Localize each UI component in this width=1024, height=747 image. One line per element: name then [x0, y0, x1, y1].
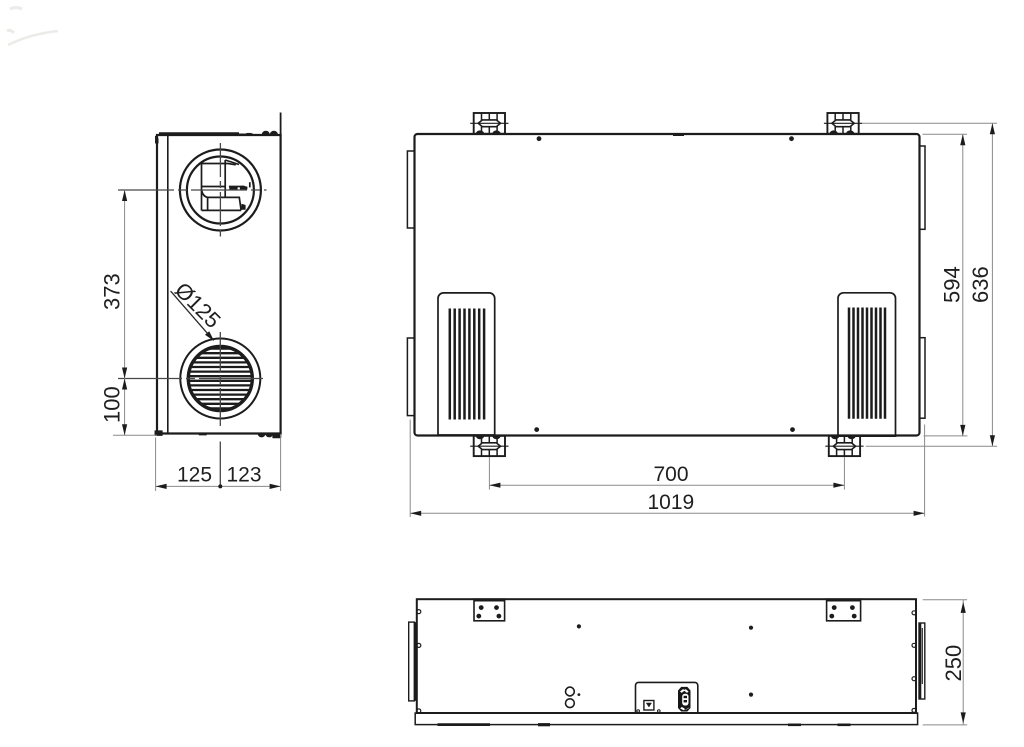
svg-text:250: 250	[941, 645, 966, 682]
svg-text:100: 100	[100, 386, 125, 423]
svg-text:125: 125	[177, 464, 212, 487]
svg-text:700: 700	[654, 463, 689, 486]
svg-text:Ø125: Ø125	[170, 277, 226, 333]
svg-text:123: 123	[227, 464, 262, 487]
svg-text:1019: 1019	[648, 491, 695, 514]
svg-text:373: 373	[100, 273, 125, 310]
svg-text:594: 594	[940, 266, 965, 303]
svg-text:636: 636	[968, 266, 993, 303]
